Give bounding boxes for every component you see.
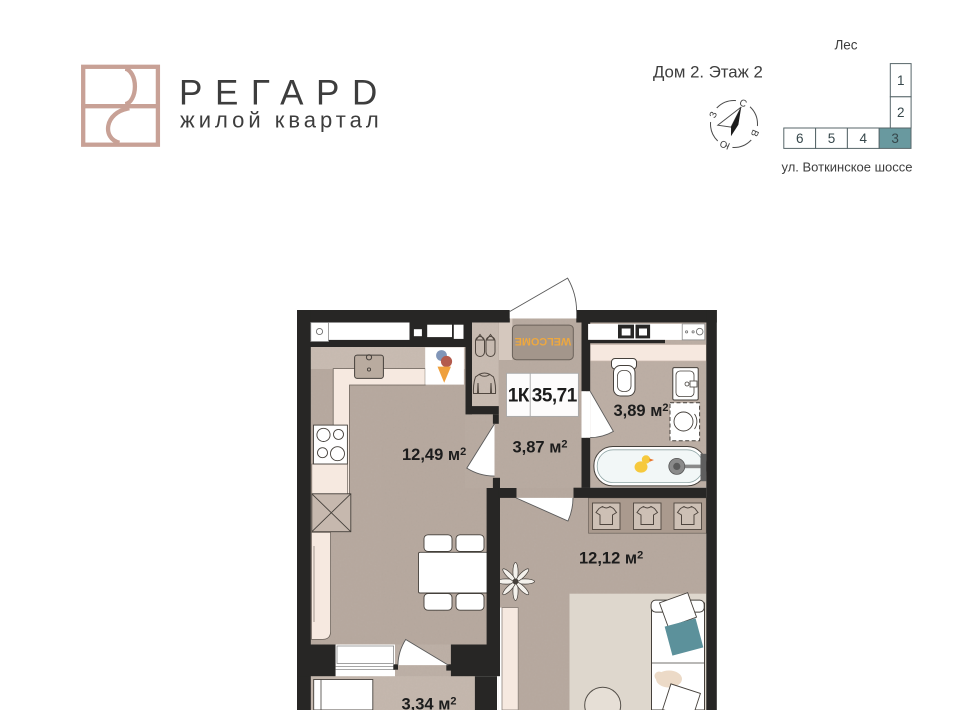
svg-text:1: 1: [897, 73, 905, 88]
svg-text:3,87 м2: 3,87 м2: [513, 439, 568, 457]
svg-text:Лес: Лес: [834, 38, 857, 53]
svg-text:3: 3: [891, 131, 899, 146]
svg-text:Дом 2. Этаж 2: Дом 2. Этаж 2: [653, 62, 763, 81]
svg-text:5: 5: [828, 131, 836, 146]
svg-text:12,12 м2: 12,12 м2: [579, 550, 643, 568]
svg-text:РЕГАРD: РЕГАРD: [179, 74, 390, 113]
svg-text:WELCOME: WELCOME: [515, 335, 571, 347]
svg-text:4: 4: [860, 131, 868, 146]
svg-text:35,71: 35,71: [532, 386, 578, 407]
svg-text:2: 2: [897, 105, 905, 120]
svg-text:3,34 м2: 3,34 м2: [402, 696, 457, 710]
svg-text:1К: 1К: [508, 386, 530, 407]
svg-text:6: 6: [796, 131, 804, 146]
svg-text:3,89 м2: 3,89 м2: [614, 402, 669, 420]
svg-text:жилой квартал: жилой квартал: [180, 108, 383, 133]
svg-text:ул. Воткинское шоссе: ул. Воткинское шоссе: [781, 160, 912, 175]
svg-text:12,49 м2: 12,49 м2: [402, 446, 466, 464]
